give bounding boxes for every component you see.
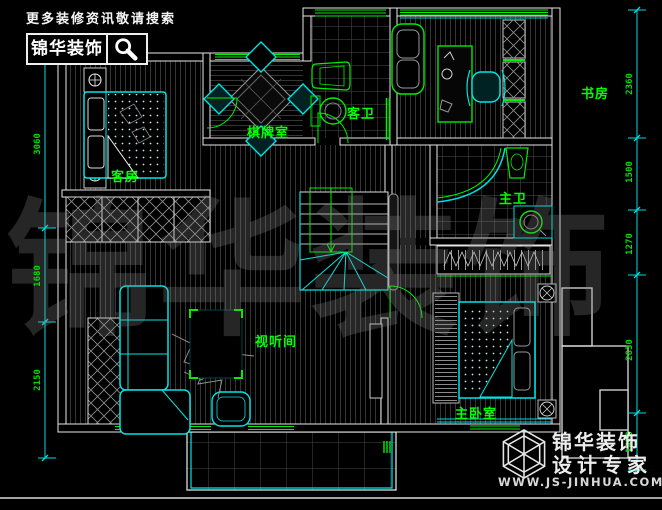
brand-name: 锦华装饰 (28, 35, 106, 63)
hexagon-cube-icon (500, 428, 548, 480)
room-label-master-bath: 主卫 (499, 188, 527, 207)
floor-plan-page: 锦华装饰 客房 棋牌室 客卫 书房 主卫 视听间 主卧室 3060 1680 2… (0, 0, 662, 510)
dim-left-2150: 2150 (33, 358, 43, 402)
dim-right-2830: 2830 (625, 328, 635, 372)
stair-railing (389, 194, 398, 290)
closet-row (437, 246, 552, 276)
search-promo: 更多装修资讯敬请搜索 锦华装饰 (26, 8, 176, 65)
room-label-study: 书房 (581, 83, 609, 102)
room-label-av-room: 视听间 (255, 331, 297, 350)
search-icon (106, 35, 142, 63)
tv-cabinet (370, 324, 382, 398)
logo-subtitle: 设计专家 (552, 449, 652, 478)
search-tagline: 更多装修资讯敬请搜索 (26, 8, 176, 27)
bookshelf (503, 20, 525, 138)
dim-right-2360: 2360 (625, 62, 635, 106)
dim-right-1270: 1270 (625, 222, 635, 266)
sofa-corner (120, 390, 190, 434)
dim-left-1680: 1680 (33, 254, 43, 298)
room-label-chess-room: 棋牌室 (247, 122, 289, 141)
room-label-master-bedroom: 主卧室 (455, 403, 497, 422)
sink (506, 148, 528, 178)
balcony (187, 432, 396, 490)
dim-right-1500: 1500 (625, 150, 635, 194)
wardrobe-band (66, 197, 210, 242)
sofa-main (120, 286, 168, 390)
search-box: 锦华装饰 (26, 33, 148, 65)
room-label-guest-bath: 客卫 (347, 103, 375, 122)
logo-url: WWW.JS-JINHUA.COM (498, 475, 662, 489)
staircase (300, 188, 398, 290)
rug (190, 310, 242, 378)
room-label-guest-room: 客房 (111, 166, 139, 185)
company-logo: 锦华装饰 设计专家 WWW.JS-JINHUA.COM (500, 426, 662, 496)
dim-left-3060: 3060 (33, 122, 43, 166)
desk-chair (472, 72, 500, 102)
